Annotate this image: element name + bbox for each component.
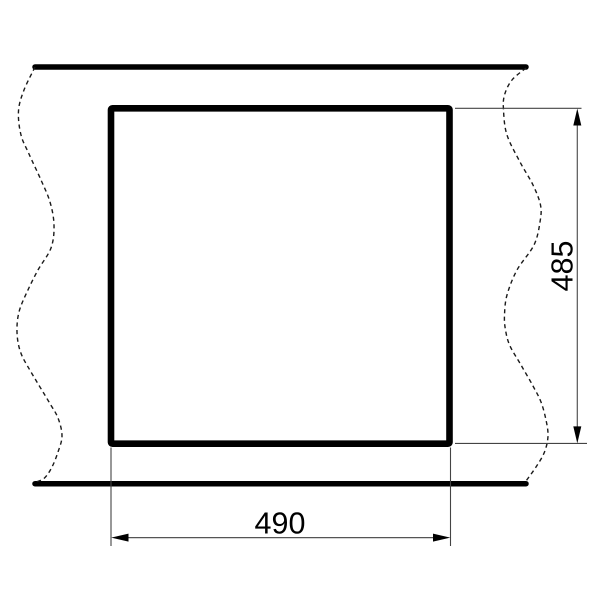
svg-text:485: 485 <box>546 241 580 292</box>
svg-text:490: 490 <box>255 507 306 541</box>
